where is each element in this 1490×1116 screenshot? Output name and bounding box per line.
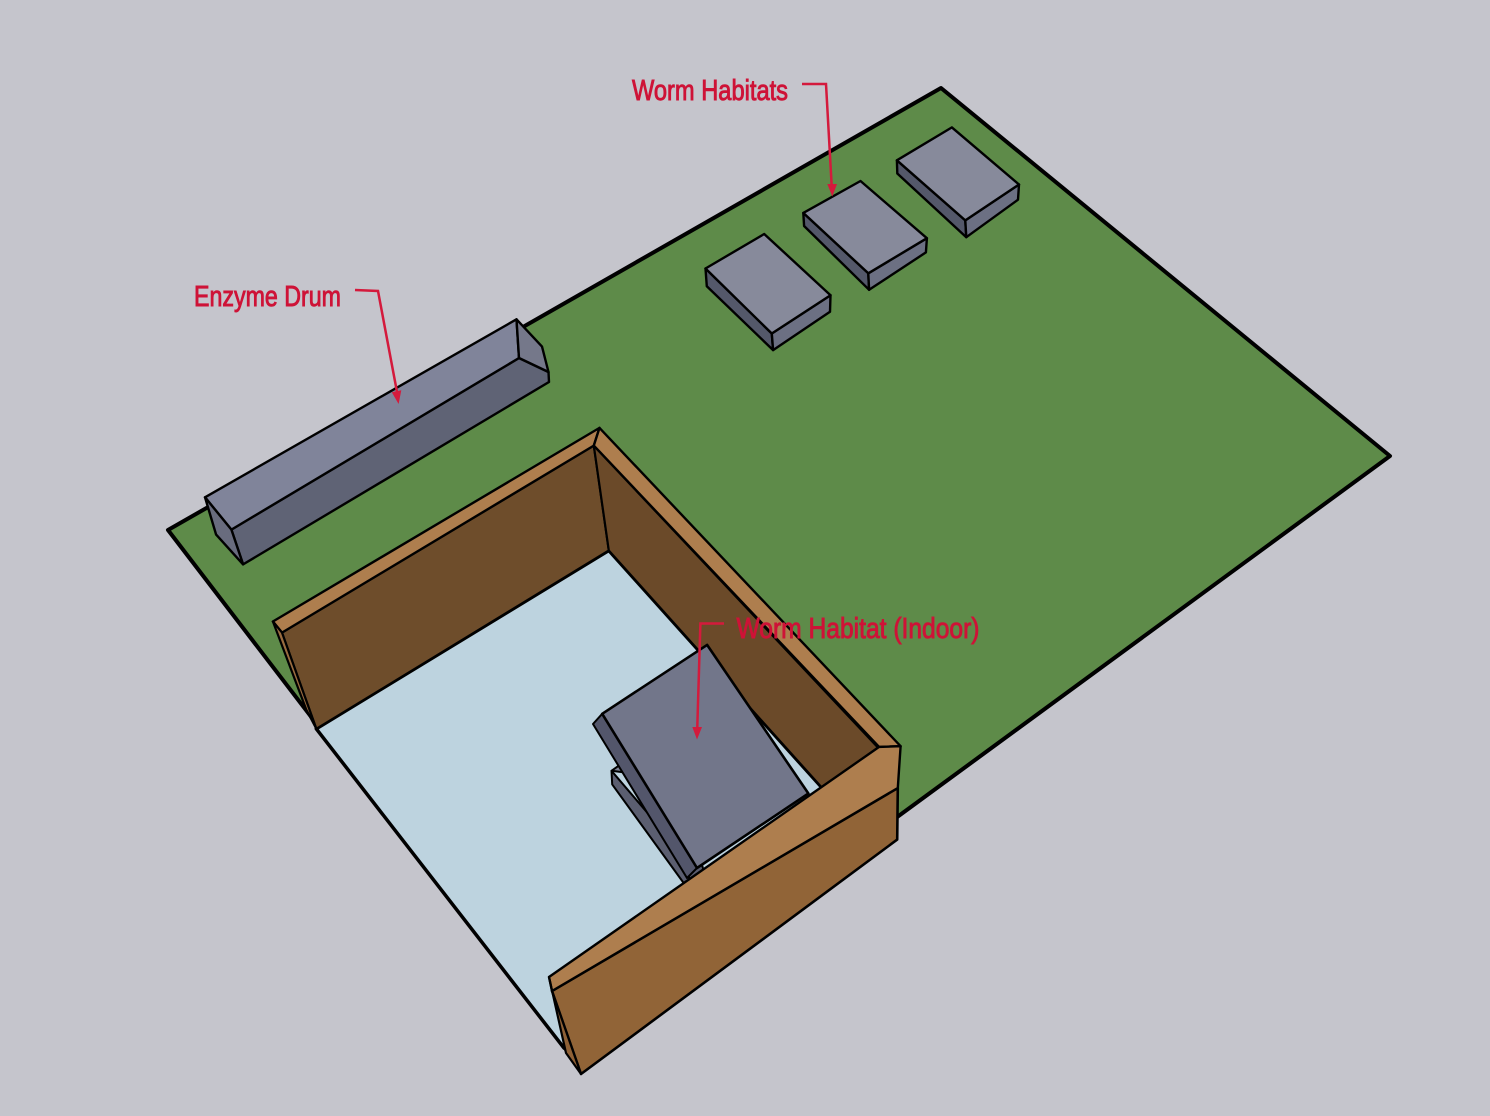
svg-text:Worm Habitat (Indoor): Worm Habitat (Indoor) bbox=[737, 613, 980, 645]
svg-text:Worm Habitats: Worm Habitats bbox=[632, 75, 788, 107]
svg-text:Enzyme Drum: Enzyme Drum bbox=[194, 281, 341, 313]
